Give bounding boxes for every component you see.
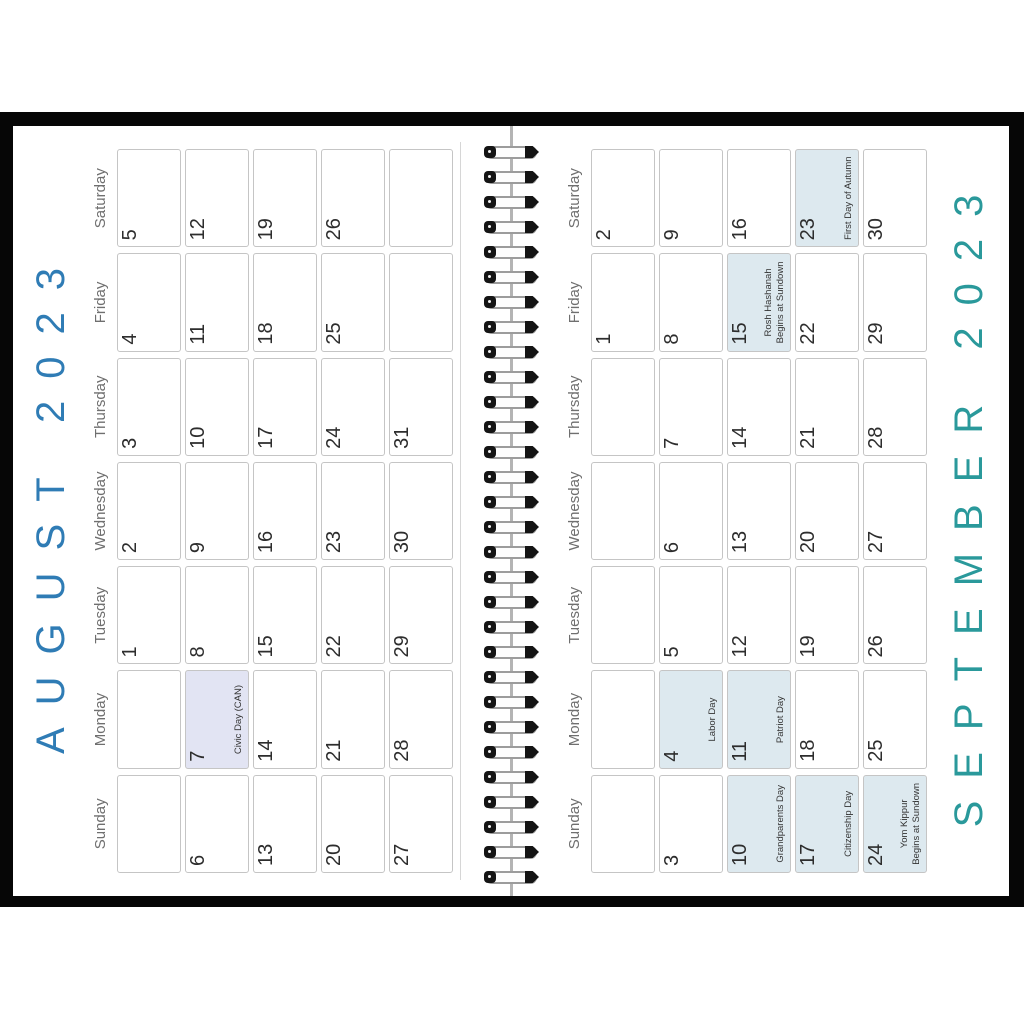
- day-number: 23: [797, 218, 820, 240]
- day-cell: 25: [321, 253, 385, 351]
- day-cell: 11: [185, 253, 249, 351]
- day-number: 16: [255, 531, 278, 553]
- day-cell: 24: [321, 358, 385, 456]
- day-header: Saturday: [563, 146, 589, 250]
- day-cell: 23First Day of Autumn: [795, 149, 859, 247]
- ring-end-left: [484, 271, 496, 283]
- ring-pin: [488, 700, 491, 703]
- day-cell: 16: [727, 149, 791, 247]
- ring-pin: [488, 650, 491, 653]
- month-title: SEPTEMBER 2023: [929, 126, 1009, 896]
- day-cell: 4: [117, 253, 181, 351]
- ring-pin: [488, 750, 491, 753]
- ring-pin: [488, 375, 491, 378]
- ring-end-right: [525, 871, 539, 883]
- binding-ring: [485, 371, 537, 384]
- ring-end-right: [525, 221, 539, 233]
- ring-end-left: [484, 746, 496, 758]
- week-row: 17Citizenship Day181920212223First Day o…: [793, 146, 861, 876]
- day-cell: [117, 670, 181, 768]
- week-row: 12: [589, 146, 657, 876]
- ring-end-left: [484, 171, 496, 183]
- ring-end-right: [525, 471, 539, 483]
- day-cell: 28: [863, 358, 927, 456]
- day-cell: 9: [659, 149, 723, 247]
- ring-end-right: [525, 646, 539, 658]
- ring-end-right: [525, 171, 539, 183]
- day-number: 7: [187, 751, 210, 762]
- day-cell: 25: [863, 670, 927, 768]
- day-number: 29: [865, 322, 888, 344]
- day-number: 18: [255, 322, 278, 344]
- day-cell: [591, 670, 655, 768]
- day-cell: 2: [117, 462, 181, 560]
- day-header: Tuesday: [89, 563, 115, 667]
- ring-end-left: [484, 596, 496, 608]
- ring-end-right: [525, 571, 539, 583]
- day-cell: 11Patriot Day: [727, 670, 791, 768]
- day-cell: 8: [659, 253, 723, 351]
- month-title: AUGUST 2023: [13, 126, 89, 896]
- day-cell: 9: [185, 462, 249, 560]
- day-header: Monday: [89, 667, 115, 771]
- binding-ring: [485, 871, 537, 884]
- ring-pin: [488, 150, 491, 153]
- day-cell: 19: [795, 566, 859, 664]
- ring-end-right: [525, 496, 539, 508]
- ring-end-right: [525, 846, 539, 858]
- holiday-label: Grandparents Day: [775, 778, 787, 870]
- day-number: 24: [323, 427, 346, 449]
- day-header: Sunday: [563, 772, 589, 876]
- ring-end-left: [484, 296, 496, 308]
- day-cell: 23: [321, 462, 385, 560]
- ring-end-left: [484, 346, 496, 358]
- ring-end-right: [525, 746, 539, 758]
- day-cell: 7Civic Day (CAN): [185, 670, 249, 768]
- day-number: 3: [661, 855, 684, 866]
- binding-ring: [485, 321, 537, 334]
- day-number: 22: [797, 322, 820, 344]
- day-header: Saturday: [89, 146, 115, 250]
- day-cell: 22: [321, 566, 385, 664]
- binding-ring: [485, 846, 537, 859]
- ring-pin: [488, 575, 491, 578]
- day-cell: 15Rosh Hashanah Begins at Sundown: [727, 253, 791, 351]
- day-cell: 2: [591, 149, 655, 247]
- week-row: 34Labor Day56789: [657, 146, 725, 876]
- ring-end-left: [484, 471, 496, 483]
- day-number: 6: [187, 855, 210, 866]
- day-number: 31: [391, 427, 414, 449]
- holiday-label: First Day of Autumn: [843, 152, 855, 244]
- day-header: Friday: [89, 250, 115, 354]
- week-row: 24Yom Kippur Begins at Sundown2526272829…: [861, 146, 929, 876]
- day-number: 20: [323, 844, 346, 866]
- ring-pin: [488, 825, 491, 828]
- ring-pin: [488, 725, 491, 728]
- ring-end-left: [484, 821, 496, 833]
- day-cell: 3: [117, 358, 181, 456]
- ring-end-right: [525, 771, 539, 783]
- ring-end-left: [484, 646, 496, 658]
- binding-ring: [485, 546, 537, 559]
- weeks: 1234Labor Day5678910Grandparents Day11Pa…: [589, 146, 929, 876]
- day-number: 4: [661, 751, 684, 762]
- day-number: 5: [119, 229, 142, 240]
- day-cell: 12: [185, 149, 249, 247]
- day-number: 23: [323, 531, 346, 553]
- day-cell: 30: [863, 149, 927, 247]
- binding-ring: [485, 246, 537, 259]
- binding-ring: [485, 446, 537, 459]
- binding-ring: [485, 346, 537, 359]
- day-number: 2: [593, 229, 616, 240]
- day-cell: 5: [659, 566, 723, 664]
- ring-pin: [488, 500, 491, 503]
- day-cell: 31: [389, 358, 453, 456]
- day-number: 10: [187, 427, 210, 449]
- ring-end-left: [484, 496, 496, 508]
- calendar-page-august: AUGUST 2023 SundayMondayTuesdayWednesday…: [13, 126, 463, 896]
- day-cell: 26: [321, 149, 385, 247]
- holiday-label: Citizenship Day: [843, 778, 855, 870]
- september-rotated-content: SundayMondayTuesdayWednesdayThursdayFrid…: [559, 126, 1009, 896]
- day-number: 19: [797, 635, 820, 657]
- day-number: 27: [865, 531, 888, 553]
- ring-end-right: [525, 721, 539, 733]
- day-number: 21: [323, 739, 346, 761]
- ring-end-left: [484, 846, 496, 858]
- ring-end-right: [525, 146, 539, 158]
- binding-ring: [485, 721, 537, 734]
- day-cell: 30: [389, 462, 453, 560]
- day-number: 10: [729, 844, 752, 866]
- day-header: Thursday: [563, 355, 589, 459]
- day-number: 9: [187, 542, 210, 553]
- ring-pin: [488, 175, 491, 178]
- binding-ring: [485, 521, 537, 534]
- day-cell: 12: [727, 566, 791, 664]
- ring-end-right: [525, 196, 539, 208]
- ring-end-right: [525, 596, 539, 608]
- ring-pin: [488, 875, 491, 878]
- day-header: Wednesday: [563, 459, 589, 563]
- day-header: Wednesday: [89, 459, 115, 563]
- day-number: 30: [391, 531, 414, 553]
- day-cell: [591, 566, 655, 664]
- day-number: 24: [865, 844, 888, 866]
- day-number: 15: [729, 322, 752, 344]
- day-number: 27: [391, 844, 414, 866]
- ring-end-right: [525, 296, 539, 308]
- binding-ring: [485, 596, 537, 609]
- day-cell: 29: [863, 253, 927, 351]
- day-cell: 13: [727, 462, 791, 560]
- day-cell: 5: [117, 149, 181, 247]
- day-number: 21: [797, 427, 820, 449]
- binding-ring: [485, 271, 537, 284]
- holiday-label: Patriot Day: [775, 673, 787, 765]
- binding-ring: [485, 221, 537, 234]
- day-cell: [591, 775, 655, 873]
- binding-ring: [485, 746, 537, 759]
- day-cell: 1: [591, 253, 655, 351]
- binding-ring: [485, 296, 537, 309]
- day-number: 22: [323, 635, 346, 657]
- ring-pin: [488, 475, 491, 478]
- day-number: 8: [187, 646, 210, 657]
- holiday-label: Labor Day: [707, 673, 719, 765]
- day-number: 26: [323, 218, 346, 240]
- ring-end-right: [525, 671, 539, 683]
- day-number: 28: [391, 739, 414, 761]
- day-number: 15: [255, 635, 278, 657]
- ring-end-left: [484, 146, 496, 158]
- day-cell: 17Citizenship Day: [795, 775, 859, 873]
- day-cell: 26: [863, 566, 927, 664]
- day-number: 7: [661, 438, 684, 449]
- ring-end-left: [484, 771, 496, 783]
- ring-end-left: [484, 621, 496, 633]
- day-cell: 18: [253, 253, 317, 351]
- binding-ring: [485, 146, 537, 159]
- binding-ring: [485, 496, 537, 509]
- ring-pin: [488, 800, 491, 803]
- calendar-page-september: SundayMondayTuesdayWednesdayThursdayFrid…: [559, 126, 1009, 896]
- ring-end-left: [484, 371, 496, 383]
- ring-end-left: [484, 571, 496, 583]
- binding-ring: [485, 471, 537, 484]
- day-cell: 19: [253, 149, 317, 247]
- ring-end-right: [525, 696, 539, 708]
- day-number: 3: [119, 438, 142, 449]
- ring-pin: [488, 425, 491, 428]
- ring-end-right: [525, 321, 539, 333]
- ring-pin: [488, 300, 491, 303]
- week-row: 10Grandparents Day11Patriot Day12131415R…: [725, 146, 793, 876]
- day-number: 26: [865, 635, 888, 657]
- binding-ring: [485, 171, 537, 184]
- ring-end-left: [484, 196, 496, 208]
- day-header: Monday: [563, 667, 589, 771]
- ring-end-left: [484, 221, 496, 233]
- day-number: 9: [661, 229, 684, 240]
- day-cell: 7: [659, 358, 723, 456]
- month-grid: SundayMondayTuesdayWednesdayThursdayFrid…: [563, 146, 929, 876]
- day-cell: 21: [321, 670, 385, 768]
- day-number: 14: [255, 739, 278, 761]
- page-edge: [460, 142, 461, 880]
- day-cell: 1: [117, 566, 181, 664]
- day-cell: 8: [185, 566, 249, 664]
- holiday-label: Yom Kippur Begins at Sundown: [899, 778, 923, 870]
- day-cell: [389, 253, 453, 351]
- day-number: 25: [323, 322, 346, 344]
- day-header-row: SundayMondayTuesdayWednesdayThursdayFrid…: [563, 146, 589, 876]
- ring-end-right: [525, 396, 539, 408]
- binding-ring: [485, 396, 537, 409]
- day-cell: 15: [253, 566, 317, 664]
- day-cell: 14: [253, 670, 317, 768]
- day-number: 8: [661, 333, 684, 344]
- day-number: 5: [661, 646, 684, 657]
- day-cell: 22: [795, 253, 859, 351]
- week-row: 13141516171819: [251, 146, 319, 876]
- day-cell: 21: [795, 358, 859, 456]
- day-cell: 3: [659, 775, 723, 873]
- day-cell: 16: [253, 462, 317, 560]
- day-cell: 29: [389, 566, 453, 664]
- month-grid: SundayMondayTuesdayWednesdayThursdayFrid…: [89, 146, 455, 876]
- day-number: 14: [729, 427, 752, 449]
- holiday-label: Civic Day (CAN): [233, 673, 245, 765]
- ring-end-right: [525, 346, 539, 358]
- day-number: 18: [797, 739, 820, 761]
- day-cell: 20: [795, 462, 859, 560]
- ring-pin: [488, 525, 491, 528]
- ring-end-left: [484, 696, 496, 708]
- ring-pin: [488, 225, 491, 228]
- ring-pin: [488, 400, 491, 403]
- ring-pin: [488, 600, 491, 603]
- august-rotated-content: AUGUST 2023 SundayMondayTuesdayWednesday…: [13, 126, 463, 896]
- day-cell: 6: [659, 462, 723, 560]
- binding-ring: [485, 571, 537, 584]
- day-number: 4: [119, 333, 142, 344]
- day-number: 16: [729, 218, 752, 240]
- day-cell: 4Labor Day: [659, 670, 723, 768]
- day-header: Tuesday: [563, 563, 589, 667]
- binding-ring: [485, 671, 537, 684]
- week-row: 12345: [115, 146, 183, 876]
- weeks: 1234567Civic Day (CAN)891011121314151617…: [115, 146, 455, 876]
- ring-end-left: [484, 796, 496, 808]
- day-number: 2: [119, 542, 142, 553]
- ring-end-left: [484, 546, 496, 558]
- ring-pin: [488, 200, 491, 203]
- ring-end-left: [484, 246, 496, 258]
- day-cell: 27: [389, 775, 453, 873]
- day-number: 19: [255, 218, 278, 240]
- day-number: 1: [119, 646, 142, 657]
- ring-end-right: [525, 271, 539, 283]
- day-number: 1: [593, 333, 616, 344]
- ring-end-right: [525, 246, 539, 258]
- day-header: Friday: [563, 250, 589, 354]
- day-cell: 10: [185, 358, 249, 456]
- ring-end-left: [484, 521, 496, 533]
- binding-ring: [485, 771, 537, 784]
- binding-ring: [485, 821, 537, 834]
- day-cell: 20: [321, 775, 385, 873]
- ring-end-right: [525, 371, 539, 383]
- day-cell: 14: [727, 358, 791, 456]
- day-header: Sunday: [89, 772, 115, 876]
- day-cell: 10Grandparents Day: [727, 775, 791, 873]
- day-number: 29: [391, 635, 414, 657]
- ring-pin: [488, 550, 491, 553]
- ring-pin: [488, 250, 491, 253]
- ring-pin: [488, 675, 491, 678]
- day-cell: 24Yom Kippur Begins at Sundown: [863, 775, 927, 873]
- day-number: 20: [797, 531, 820, 553]
- ring-pin: [488, 625, 491, 628]
- ring-end-left: [484, 671, 496, 683]
- ring-end-right: [525, 421, 539, 433]
- day-cell: [117, 775, 181, 873]
- day-header: Thursday: [89, 355, 115, 459]
- day-number: 30: [865, 218, 888, 240]
- binding-ring: [485, 421, 537, 434]
- day-cell: [591, 358, 655, 456]
- ring-pin: [488, 850, 491, 853]
- ring-end-left: [484, 321, 496, 333]
- ring-end-right: [525, 446, 539, 458]
- week-row: 67Civic Day (CAN)89101112: [183, 146, 251, 876]
- day-cell: 17: [253, 358, 317, 456]
- day-number: 17: [797, 844, 820, 866]
- ring-end-left: [484, 721, 496, 733]
- day-number: 11: [187, 324, 210, 345]
- day-cell: 28: [389, 670, 453, 768]
- day-number: 13: [729, 531, 752, 553]
- binding-ring: [485, 796, 537, 809]
- day-number: 11: [729, 741, 752, 762]
- ring-pin: [488, 350, 491, 353]
- day-number: 12: [729, 635, 752, 657]
- planner-spread: AUGUST 2023 SundayMondayTuesdayWednesday…: [13, 126, 1009, 896]
- ring-end-left: [484, 421, 496, 433]
- binding-ring: [485, 621, 537, 634]
- day-number: 28: [865, 427, 888, 449]
- binding-ring: [485, 646, 537, 659]
- week-row: 20212223242526: [319, 146, 387, 876]
- day-cell: [591, 462, 655, 560]
- calendar-frame: AUGUST 2023 SundayMondayTuesdayWednesday…: [0, 112, 1024, 907]
- ring-pin: [488, 275, 491, 278]
- ring-pin: [488, 775, 491, 778]
- ring-end-right: [525, 796, 539, 808]
- day-header-row: SundayMondayTuesdayWednesdayThursdayFrid…: [89, 146, 115, 876]
- day-number: 12: [187, 218, 210, 240]
- day-number: 25: [865, 739, 888, 761]
- ring-pin: [488, 325, 491, 328]
- ring-end-left: [484, 396, 496, 408]
- day-cell: 27: [863, 462, 927, 560]
- ring-end-right: [525, 621, 539, 633]
- ring-end-right: [525, 521, 539, 533]
- holiday-label: Rosh Hashanah Begins at Sundown: [763, 256, 787, 348]
- ring-pin: [488, 450, 491, 453]
- day-number: 6: [661, 542, 684, 553]
- day-cell: [389, 149, 453, 247]
- binding-ring: [485, 196, 537, 209]
- day-cell: 6: [185, 775, 249, 873]
- day-number: 13: [255, 844, 278, 866]
- ring-end-right: [525, 546, 539, 558]
- ring-end-left: [484, 871, 496, 883]
- day-cell: 18: [795, 670, 859, 768]
- binding-ring: [485, 696, 537, 709]
- day-cell: 13: [253, 775, 317, 873]
- day-number: 17: [255, 427, 278, 449]
- ring-end-right: [525, 821, 539, 833]
- ring-end-left: [484, 446, 496, 458]
- week-row: 2728293031: [387, 146, 455, 876]
